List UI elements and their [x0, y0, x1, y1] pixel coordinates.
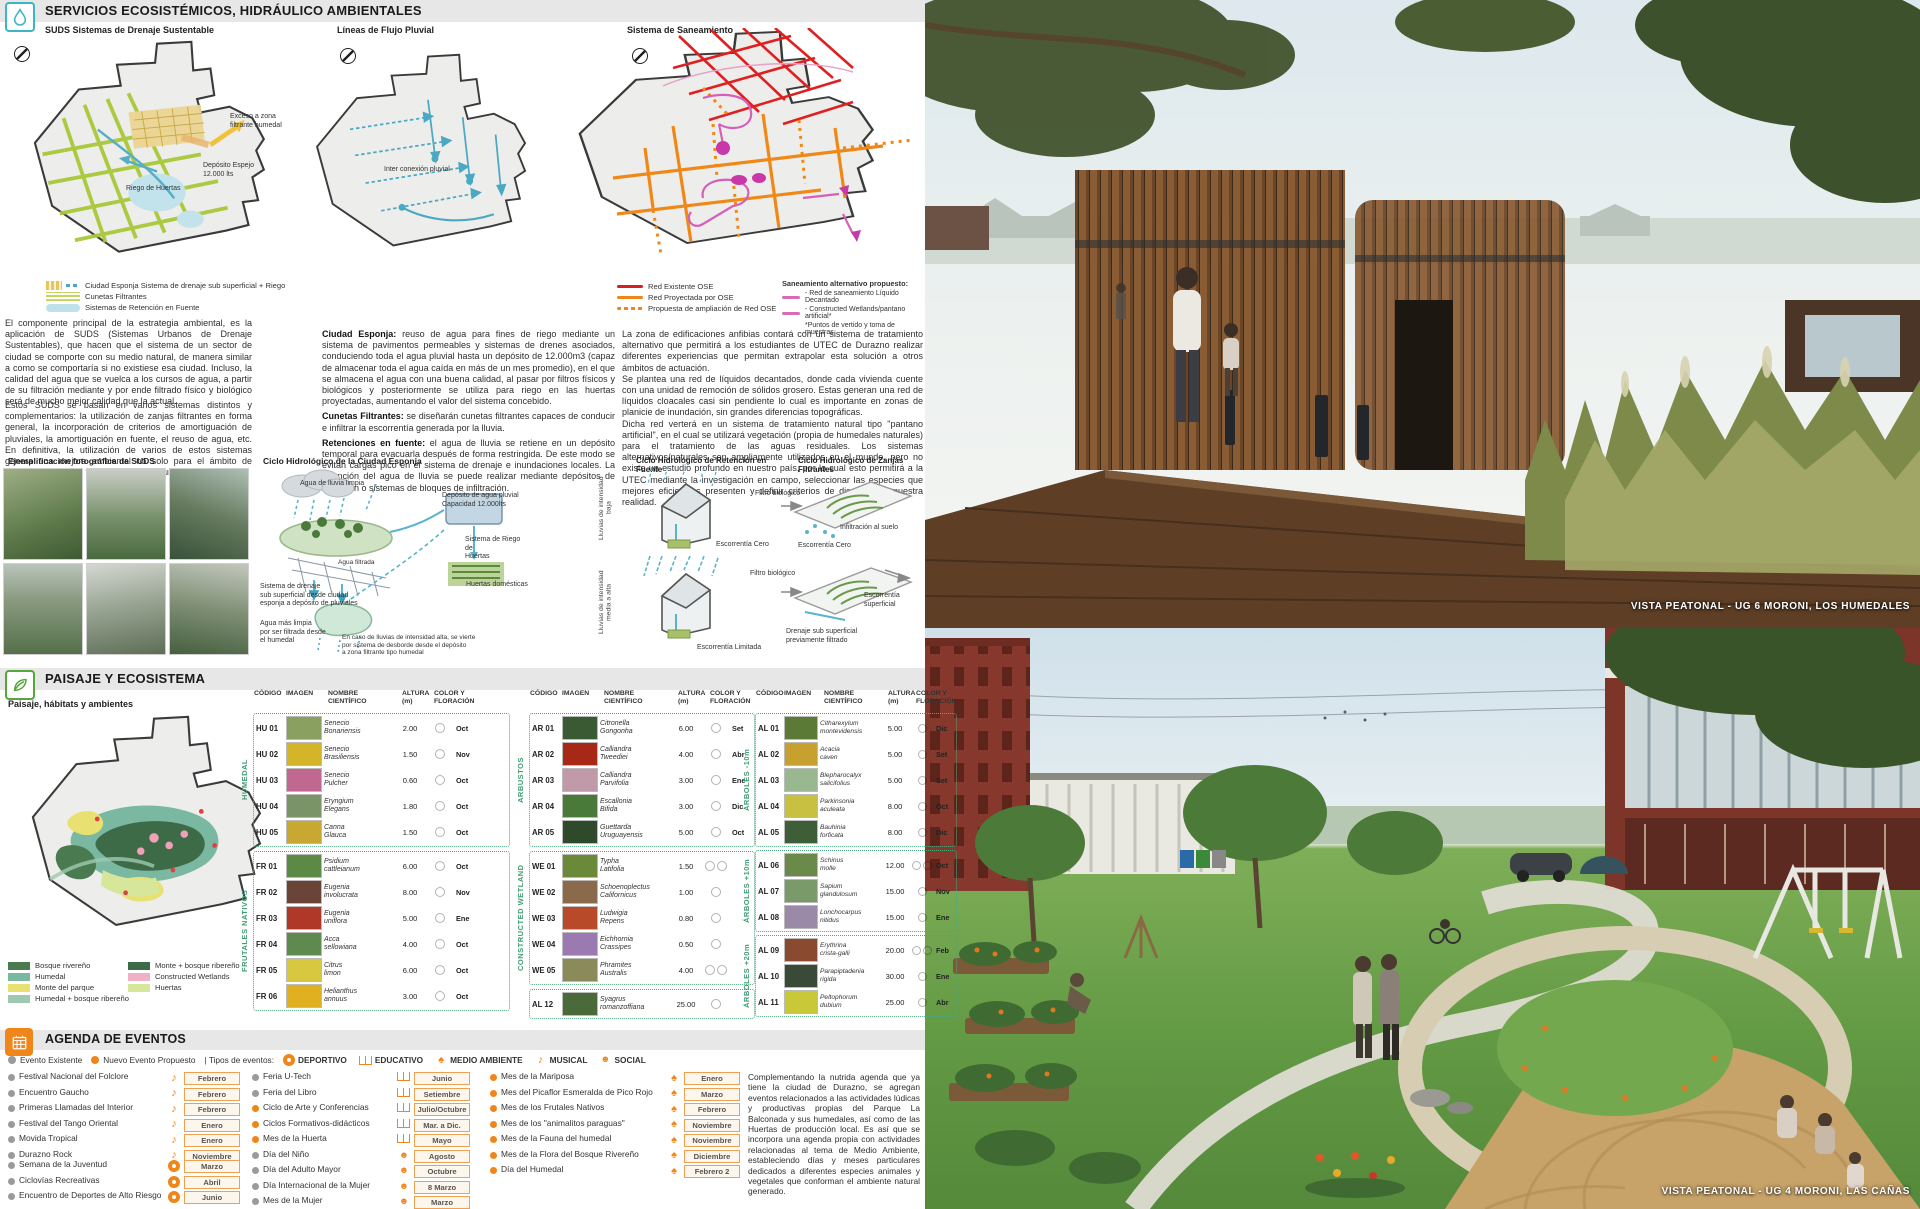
species-flower-colors — [700, 887, 732, 897]
event-month: Noviembre — [684, 1119, 740, 1132]
legend-item: Sistemas de Retención en Fuente — [46, 303, 285, 312]
event-row: Primeras Llamadas del Interior Febrero — [8, 1103, 240, 1116]
species-photo — [286, 794, 322, 818]
legend-item: Red Existente OSE — [617, 282, 776, 291]
flower-color-dot — [912, 946, 921, 955]
flower-color-dot — [717, 861, 727, 871]
species-photo — [784, 853, 818, 877]
legend-item: - Red de saneamiento Líquido Decantado — [782, 290, 924, 304]
event-label: Día del Niño — [263, 1150, 394, 1160]
house-diagram — [642, 466, 722, 550]
species-name: Syagrus romanzoffiana — [600, 996, 672, 1011]
species-month: Oct — [456, 802, 476, 811]
section-title-servicios: SERVICIOS ECOSISTÉMICOS, HIDRÁULICO AMBI… — [45, 3, 422, 18]
legend-alt: Saneamiento alternativo propuesto: - Red… — [782, 279, 924, 336]
flower-color-dot — [705, 861, 715, 871]
event-month: Febrero — [184, 1088, 240, 1101]
suds-photo — [3, 563, 83, 655]
poster-panel: SERVICIOS ECOSISTÉMICOS, HIDRÁULICO AMBI… — [0, 0, 925, 1209]
species-row: FR 03 Eugenia uniflora 5.00 Ene — [256, 905, 507, 931]
event-status-dot — [252, 1167, 259, 1174]
species-group: ARBUSTOS AR 01 Citronella Gongonha 6.00 … — [516, 713, 738, 847]
event-row: Encuentro de Deportes de Alto Riesgo Jun… — [8, 1191, 240, 1204]
event-type-icon — [359, 1056, 372, 1065]
event-type-icon — [397, 1088, 410, 1097]
diagram-label-rotated: Lluvias de intensidad media a alta — [598, 560, 613, 644]
species-height: 1.50 — [396, 750, 424, 759]
species-height: 3.00 — [672, 802, 700, 811]
event-label: Festival del Tango Oriental — [19, 1119, 164, 1129]
species-flower-colors — [908, 913, 936, 922]
event-type-icon — [397, 1119, 410, 1128]
species-box: AL 01 Citharexylum montevidensis 5.00 Di… — [755, 713, 957, 847]
species-code: AL 08 — [758, 913, 784, 922]
event-row: Ciclo de Arte y Conferencias Julio/Octub… — [252, 1103, 470, 1116]
species-month: Oct — [936, 861, 954, 870]
species-height: 5.00 — [396, 914, 424, 923]
event-row: Festival del Tango Oriental Enero — [8, 1119, 240, 1132]
event-status-dot — [252, 1105, 259, 1112]
species-code: FR 03 — [256, 914, 286, 923]
legend-label: - Constructed Wetlands/pantano artificia… — [805, 306, 924, 320]
event-type-icon — [398, 1196, 410, 1208]
event-type-icon — [398, 1181, 410, 1193]
agenda-col3: Mes de la Mariposa Enero Mes del Picaflo… — [490, 1072, 740, 1178]
col-header: ALTURA (m) — [402, 690, 434, 710]
agenda-paragraph: Complementando la nutrida agenda que ya … — [748, 1072, 920, 1197]
event-month: Febrero — [184, 1072, 240, 1085]
species-month: Oct — [456, 940, 476, 949]
col-header: COLOR Y FLORACIÓN — [916, 690, 956, 710]
species-height: 25.00 — [882, 998, 908, 1007]
species-month: Nov — [456, 888, 476, 897]
legend-line-swatch — [782, 296, 800, 299]
species-photo — [286, 854, 322, 878]
render-photo-humedales: VISTA PEATONAL - UG 6 MORONI, LOS HUMEDA… — [925, 0, 1920, 628]
legend-swatch — [8, 973, 30, 981]
species-name: Citronella Gongonha — [600, 720, 672, 735]
figure-cyclists — [1430, 919, 1460, 943]
event-label: Mes de la Mariposa — [501, 1072, 664, 1082]
species-code: FR 02 — [256, 888, 286, 897]
species-height: 4.00 — [396, 940, 424, 949]
filter-types-label: | Tipos de eventos: — [205, 1055, 275, 1065]
species-name: Citrus limon — [324, 962, 396, 977]
flower-color-dot — [918, 972, 927, 981]
species-photo — [784, 716, 818, 740]
species-photo — [286, 820, 322, 844]
species-flower-colors — [700, 939, 732, 949]
flower-color-dot — [918, 776, 927, 785]
species-name: Calliandra Parvifolia — [600, 772, 672, 787]
species-flower-colors — [424, 827, 456, 837]
col-header: ALTURA (m) — [678, 690, 710, 710]
suds-photo-grid — [3, 468, 249, 655]
species-month: Oct — [456, 828, 476, 837]
event-type-icon — [168, 1160, 180, 1172]
event-type-icon — [668, 1150, 680, 1162]
event-type-legend: DEPORTIVO EDUCATIVO MEDIO AMBIENTE MUSIC… — [283, 1054, 646, 1066]
species-row: AR 02 Calliandra Tweediei 4.00 Abr — [532, 741, 752, 767]
event-type-icon — [599, 1054, 611, 1066]
species-row: AR 05 Guettarda Uruguayensis 5.00 Oct — [532, 819, 752, 845]
species-name: Bauhinia forficata — [820, 824, 882, 839]
event-row: Feria del Libro Setiembre — [252, 1088, 470, 1101]
legend-swatch — [128, 962, 150, 970]
legend-item: Ciudad Esponja Sistema de drenaje sub su… — [46, 281, 285, 290]
event-row: Feria U-Tech Junio — [252, 1072, 470, 1085]
flower-color-dot — [923, 861, 932, 870]
suds-photo — [86, 468, 166, 560]
event-type-item: MEDIO AMBIENTE — [435, 1054, 523, 1066]
flower-color-dot — [711, 775, 721, 785]
species-code: AL 05 — [758, 828, 784, 837]
map-title-pluvial: Líneas de Flujo Pluvial — [337, 25, 434, 35]
event-type-item: MUSICAL — [535, 1054, 588, 1066]
species-row: AL 10 Parapiptadenia rigida 30.00 Ene — [758, 963, 954, 989]
species-flower-colors — [700, 965, 732, 975]
species-height: 5.00 — [882, 750, 908, 759]
event-type-icon — [168, 1191, 180, 1203]
flower-color-dot — [711, 801, 721, 811]
flower-color-dot — [435, 775, 445, 785]
diagram-label: Escorrentía Cero — [798, 542, 851, 551]
event-label: Ciclovías Recreativas — [19, 1176, 164, 1186]
event-label: Día del Adulto Mayor — [263, 1165, 394, 1175]
event-type-icon — [668, 1119, 680, 1131]
species-code: AL 12 — [532, 1000, 562, 1009]
legend-item: Monte del parque — [8, 983, 129, 992]
event-label: Encuentro de Deportes de Alto Riesgo — [19, 1191, 164, 1201]
species-flower-colors — [908, 750, 936, 759]
species-height: 8.00 — [396, 888, 424, 897]
species-height: 3.00 — [672, 776, 700, 785]
species-flower-colors — [424, 801, 456, 811]
event-row: Movida Tropical Enero — [8, 1134, 240, 1147]
species-photo — [562, 854, 598, 878]
species-flower-colors — [424, 775, 456, 785]
event-type-icon — [668, 1072, 680, 1084]
species-code: WE 02 — [532, 888, 562, 897]
species-code: FR 01 — [256, 862, 286, 871]
flower-color-dot — [435, 801, 445, 811]
map-pluvial — [298, 38, 558, 290]
species-code: HU 01 — [256, 724, 286, 733]
species-photo — [286, 880, 322, 904]
species-box: AL 09 Erythrina crista-galli 20.00 Feb A… — [755, 935, 957, 1017]
legend-label: Bosque rivereño — [35, 961, 90, 970]
species-code: HU 02 — [256, 750, 286, 759]
species-name: Calliandra Tweediei — [600, 746, 672, 761]
species-box: AL 12 Syagrus romanzoffiana 25.00 — [529, 989, 755, 1019]
species-code: HU 03 — [256, 776, 286, 785]
event-type-icon — [397, 1072, 410, 1081]
species-name: Escallonia Bifida — [600, 798, 672, 813]
photo-caption-bottom: VISTA PEATONAL - UG 4 MORONI, LAS CAÑAS — [1662, 1186, 1910, 1197]
legend-label: Red Existente OSE — [648, 282, 713, 291]
species-height: 6.00 — [396, 966, 424, 975]
event-type-icon — [668, 1165, 680, 1177]
legend-item: Humedal + bosque ribereño — [8, 994, 129, 1003]
event-row: Ciclos Formativos-didácticos Mar. a Dic. — [252, 1119, 470, 1132]
event-type-icon — [168, 1088, 180, 1100]
species-photo — [784, 964, 818, 988]
event-label: Encuentro Gaucho — [19, 1088, 164, 1098]
flower-color-dot — [435, 749, 445, 759]
filter-label: Evento Existente — [20, 1055, 82, 1065]
species-name: Eugenia uniflora — [324, 910, 396, 925]
species-photo — [562, 820, 598, 844]
flower-color-dot — [711, 939, 721, 949]
flower-color-dot — [918, 828, 927, 837]
event-row: Semana de la Juventud Marzo — [8, 1160, 240, 1173]
legend-label: Humedal + bosque ribereño — [35, 994, 129, 1003]
species-flower-colors — [424, 991, 456, 1001]
species-table-col2: CÓDIGO IMAGEN NOMBRE CIENTÍFICO ALTURA (… — [516, 690, 738, 1023]
species-name: Ludwigia Repens — [600, 910, 672, 925]
species-code: HU 04 — [256, 802, 286, 811]
event-status-dot — [8, 1090, 15, 1097]
flower-color-dot — [918, 750, 927, 759]
diagram-label-rotated: Lluvias de intensidad baja — [598, 472, 613, 544]
species-box: AL 06 Schinus molle 12.00 Oct AL 07 — [755, 850, 957, 932]
render-photo-canas: VISTA PEATONAL - UG 4 MORONI, LAS CAÑAS — [925, 628, 1920, 1209]
species-table-col1: CÓDIGO IMAGEN NOMBRE CIENTÍFICO ALTURA (… — [240, 690, 510, 1015]
flower-color-dot — [918, 724, 927, 733]
species-photo — [784, 938, 818, 962]
event-label: Movida Tropical — [19, 1134, 164, 1144]
legend-label: Huertas — [155, 983, 182, 992]
species-row: AL 07 Sapium glandulosum 15.00 Nov — [758, 878, 954, 904]
species-code: WE 05 — [532, 966, 562, 975]
diagram-label: Filtro biológico — [755, 490, 800, 499]
species-height: 5.00 — [882, 776, 908, 785]
species-code: WE 03 — [532, 914, 562, 923]
event-month: Febrero 2 — [684, 1165, 740, 1178]
map-label: Exceso a zona filtrante humedal — [230, 113, 308, 130]
flower-color-dot — [705, 965, 715, 975]
legend-label: Monte del parque — [35, 983, 94, 992]
species-height: 5.00 — [882, 724, 908, 733]
species-flower-colors — [700, 861, 732, 871]
species-name: Senecio Brasiliensis — [324, 746, 396, 761]
paisaje-legend-b: Monte + bosque ribereño Constructed Wetl… — [128, 961, 240, 992]
species-row: AL 04 Parkinsonia aculeata 8.00 Oct — [758, 793, 954, 819]
event-label: Mes de la Mujer — [263, 1196, 394, 1206]
section-title-paisaje: PAISAJE Y ECOSISTEMA — [45, 671, 205, 686]
species-flower-colors — [424, 749, 456, 759]
species-row: FR 06 Helianthus annuus 3.00 Oct — [256, 983, 507, 1009]
species-month: Oct — [456, 966, 476, 975]
species-row: WE 05 Phramites Australis 4.00 — [532, 957, 752, 983]
event-month: Mar. a Dic. — [414, 1119, 470, 1132]
species-photo — [562, 794, 598, 818]
diagram-label: Agua de lluvia limpia — [300, 480, 364, 489]
suds-photo — [3, 468, 83, 560]
species-table-col3: CÓDIGO IMAGEN NOMBRE CIENTÍFICO ALTURA (… — [742, 690, 924, 1020]
species-group-label: ÁRBOLES -10m — [742, 713, 755, 847]
species-flower-colors — [424, 861, 456, 871]
species-group: ÁRBOLES +10m AL 06 Schinus molle 12.00 O… — [742, 850, 924, 932]
event-status-dot — [252, 1183, 259, 1190]
event-type-icon — [168, 1134, 180, 1146]
event-month: Abril — [184, 1176, 240, 1189]
agenda-col1a: Festival Nacional del Folclore Febrero E… — [8, 1072, 240, 1163]
ciclo-esponja-title: Ciclo Hidrológico de la Ciudad Esponja — [263, 456, 422, 466]
legend-item: Huertas — [128, 983, 240, 992]
event-label: Durazno Rock — [19, 1150, 164, 1160]
species-table-header: CÓDIGO IMAGEN NOMBRE CIENTÍFICO ALTURA (… — [756, 690, 924, 710]
species-photo — [562, 906, 598, 930]
legend-item: Cunetas Filtrantes — [46, 292, 285, 301]
event-type-icon — [397, 1134, 410, 1143]
event-row: Mes de los Frutales Nativos Febrero — [490, 1103, 740, 1116]
species-height: 8.00 — [882, 802, 908, 811]
species-group-label: CONSTRUCTED WETLAND — [516, 851, 529, 985]
event-status-dot — [490, 1136, 497, 1143]
species-code: AR 05 — [532, 828, 562, 837]
species-height: 15.00 — [882, 913, 908, 922]
species-name: Acacia caven — [820, 746, 882, 761]
flower-color-dot — [435, 991, 445, 1001]
paragraph-lead: Ciudad Esponja: — [322, 329, 396, 339]
species-group-label: ÁRBOLES +20m — [742, 935, 755, 1017]
event-row: Mes de la Mujer Marzo — [252, 1196, 470, 1209]
event-type-icon — [398, 1150, 410, 1162]
legend-swatch — [46, 292, 80, 301]
flower-color-dot — [711, 999, 721, 1009]
species-photo — [784, 742, 818, 766]
species-code: FR 05 — [256, 966, 286, 975]
legend-line-swatch — [617, 285, 643, 288]
species-group: FRUTALES NATIVOS FR 01 Psidium cattleian… — [240, 851, 510, 1011]
col-header: CÓDIGO — [756, 690, 784, 710]
legend-label: Humedal — [35, 972, 65, 981]
species-flower-colors — [908, 998, 936, 1007]
ejemplo-title: Ejemplificación fotográfica de SUDS — [8, 456, 155, 466]
species-code: FR 04 — [256, 940, 286, 949]
species-group-label: ARBUSTOS — [516, 713, 529, 847]
flower-color-dot — [711, 723, 721, 733]
map-label: Inter conexión pluvial — [384, 166, 450, 175]
event-type-label: EDUCATIVO — [375, 1055, 423, 1065]
species-name: Phramites Australis — [600, 962, 672, 977]
event-label: Primeras Llamadas del Interior — [19, 1103, 164, 1113]
legend-swatch — [8, 984, 30, 992]
legend-label: Monte + bosque ribereño — [155, 961, 240, 970]
flower-color-dot — [435, 939, 445, 949]
legend-line-swatch — [617, 296, 643, 299]
calendar-icon — [5, 1028, 33, 1056]
species-row: AR 01 Citronella Gongonha 6.00 Set — [532, 715, 752, 741]
species-name: Erythrina crista-galli — [820, 942, 882, 957]
event-row: Mes de la Fauna del humedal Noviembre — [490, 1134, 740, 1147]
species-code: AL 11 — [758, 998, 784, 1007]
gray-dot-icon — [8, 1056, 16, 1064]
species-photo — [562, 992, 598, 1016]
species-row: AL 08 Lonchocarpus nitidus 15.00 Ene — [758, 904, 954, 930]
event-status-dot — [8, 1178, 15, 1185]
species-height: 3.00 — [396, 992, 424, 1001]
species-name: Citharexylum montevidensis — [820, 720, 882, 735]
species-row: AL 12 Syagrus romanzoffiana 25.00 — [532, 991, 752, 1017]
species-name: Blepharocalyx salicifolius — [820, 772, 882, 787]
species-name: Senecio Pulcher — [324, 772, 396, 787]
event-label: Mes de la Huerta — [263, 1134, 393, 1144]
event-month: 8 Marzo — [414, 1181, 470, 1194]
species-row: AR 03 Calliandra Parvifolia 3.00 Ene — [532, 767, 752, 793]
species-box: FR 01 Psidium cattleianum 6.00 Oct FR 02 — [253, 851, 510, 1011]
event-row: Día Internacional de la Mujer 8 Marzo — [252, 1181, 470, 1194]
event-status-dot — [8, 1193, 15, 1200]
paragraph-text: reuso de agua para fines de riego median… — [322, 329, 615, 406]
event-month: Junio — [414, 1072, 470, 1085]
species-flower-colors — [908, 828, 936, 837]
species-flower-colors — [908, 776, 936, 785]
flower-color-dot — [918, 802, 927, 811]
species-flower-colors — [908, 861, 936, 870]
species-flower-colors — [700, 999, 732, 1009]
species-row: AL 01 Citharexylum montevidensis 5.00 Di… — [758, 715, 954, 741]
event-row: Mes del Picaflor Esmeralda de Pico Rojo … — [490, 1088, 740, 1101]
species-month: Oct — [456, 992, 476, 1001]
legend-label: Ciudad Esponja Sistema de drenaje sub su… — [85, 281, 285, 290]
species-code: AL 10 — [758, 972, 784, 981]
diagram-label: Agua filtrada — [338, 559, 375, 568]
event-month: Enero — [184, 1119, 240, 1132]
species-photo — [784, 905, 818, 929]
map-label: Riego de Huertas — [126, 185, 180, 194]
species-row: AL 05 Bauhinia forficata 8.00 Dic — [758, 819, 954, 845]
species-flower-colors — [908, 887, 936, 896]
flower-color-dot — [711, 827, 721, 837]
species-row: HU 01 Senecio Bonariensis 2.00 Oct — [256, 715, 507, 741]
paisaje-legend-a: Bosque rivereño Humedal Monte del parque… — [8, 961, 129, 1003]
diagram-label: Agua más limpia por ser filtrada desde e… — [260, 620, 350, 646]
event-status-dot — [8, 1162, 15, 1169]
species-row: AL 06 Schinus molle 12.00 Oct — [758, 852, 954, 878]
diagram-label: Escorrentía Limitada — [697, 644, 761, 653]
species-height: 8.00 — [882, 828, 908, 837]
event-month: Junio — [184, 1191, 240, 1204]
species-group-label: FRUTALES NATIVOS — [240, 851, 253, 1011]
event-status-dot — [490, 1090, 497, 1097]
species-code: AL 04 — [758, 802, 784, 811]
species-flower-colors — [908, 972, 936, 981]
suds-photo — [86, 563, 166, 655]
species-group: CONSTRUCTED WETLAND WE 01 Typha Latifoli… — [516, 851, 738, 985]
paragraph-suds-1: El componente principal de la estrategia… — [5, 318, 252, 408]
event-type-label: SOCIAL — [614, 1055, 645, 1065]
species-photo — [784, 794, 818, 818]
map-label: Depósito Espejo 12.000 lts — [203, 162, 273, 179]
event-month: Diciembre — [684, 1150, 740, 1163]
event-type-icon — [397, 1103, 410, 1112]
event-label: Feria del Libro — [263, 1088, 393, 1098]
species-code: AL 07 — [758, 887, 784, 896]
event-type-icon — [535, 1054, 547, 1066]
species-photo — [562, 880, 598, 904]
event-type-item: EDUCATIVO — [359, 1054, 423, 1066]
event-type-item: DEPORTIVO — [283, 1054, 347, 1066]
species-row: AL 02 Acacia caven 5.00 Set — [758, 741, 954, 767]
page: SERVICIOS ECOSISTÉMICOS, HIDRÁULICO AMBI… — [0, 0, 1920, 1209]
flower-color-dot — [923, 946, 932, 955]
legend-alt-title: Saneamiento alternativo propuesto: — [782, 279, 924, 288]
event-label: Mes de los "animalitos paraguas" — [501, 1119, 664, 1129]
event-month: Enero — [684, 1072, 740, 1085]
event-month: Marzo — [414, 1196, 470, 1209]
